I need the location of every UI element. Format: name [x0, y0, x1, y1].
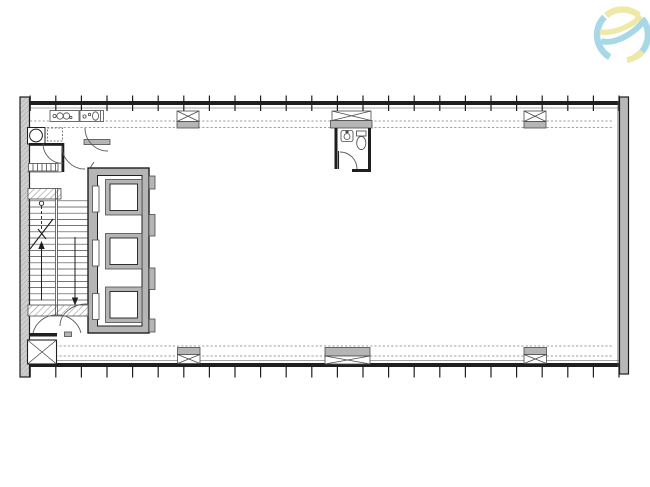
column-marker-bottom-2	[325, 348, 370, 365]
elevator-door-slot	[93, 294, 100, 320]
stair-landing-hatch-top	[28, 189, 61, 200]
wc-wall-left	[335, 128, 338, 169]
elevator-shaft-1	[106, 180, 143, 216]
radiator	[29, 164, 59, 172]
elevator-shaft-3	[106, 287, 143, 323]
floor-plan-drawing	[0, 0, 650, 487]
sink-counter	[50, 111, 104, 122]
sphere-swoosh-logo	[597, 10, 648, 61]
core-tab	[149, 319, 155, 332]
core-tab	[149, 268, 155, 290]
door-jamb	[65, 332, 72, 337]
elevator-door-slot	[93, 186, 100, 212]
stair-landing-hatch-bottom	[28, 305, 88, 316]
column-marker-bottom-1	[178, 348, 201, 364]
core-tab	[149, 176, 155, 189]
column-marker-top-2	[524, 111, 546, 128]
lobby-wall	[29, 333, 57, 337]
toilet-fixture	[357, 131, 367, 150]
partition-wall-h	[29, 143, 62, 146]
wc-wall-right	[368, 128, 371, 172]
basin-fixture	[341, 131, 353, 142]
floor-plan-page	[0, 0, 650, 487]
wc-wall-bottom	[352, 169, 371, 172]
door-lintel	[84, 140, 110, 145]
column-marker-bottom-3	[524, 348, 547, 364]
right-wall	[620, 97, 629, 374]
core-tab	[149, 215, 155, 237]
elevator-core	[88, 162, 155, 333]
column-marker-top-1	[177, 111, 199, 128]
column-marker-bottom-corner	[28, 340, 57, 364]
floor-fixture	[28, 128, 46, 145]
wc-lintel	[331, 121, 373, 129]
elevator-shaft-2	[106, 234, 143, 270]
elevator-door-slot	[93, 240, 100, 266]
